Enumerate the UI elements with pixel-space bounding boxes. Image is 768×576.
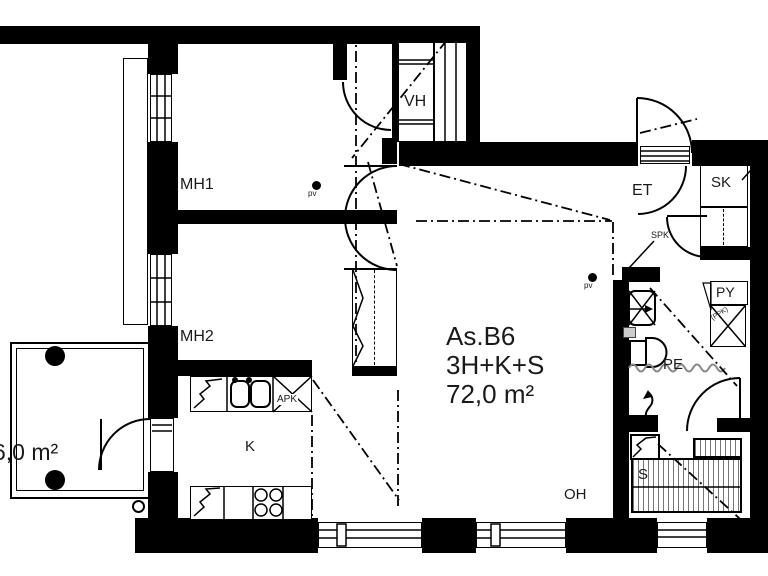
vh-door-arc [343, 82, 391, 130]
wall [352, 367, 397, 376]
sauna-bench-upper [693, 438, 742, 458]
sauna-stove [630, 434, 660, 460]
room-label-mh2: MH2 [180, 328, 214, 346]
entry-door-threshold [640, 146, 690, 164]
apartment-id: As.B6 [446, 322, 515, 350]
wall [178, 210, 397, 224]
wall [135, 518, 318, 553]
balcony-door [150, 418, 174, 472]
wall [717, 418, 750, 432]
room-label-oh: OH [564, 486, 587, 503]
window-south-2 [476, 522, 566, 548]
room-label-vh: VH [404, 93, 426, 111]
entry-door-arc [637, 98, 692, 153]
wall [148, 326, 178, 418]
wall [700, 247, 750, 260]
pv-annotation: pv [584, 281, 592, 290]
balcony-area-label: 6,0 m² [0, 439, 58, 466]
wardrobe-divider [374, 270, 375, 365]
washbasin [628, 290, 656, 326]
closet-sk-lower [700, 207, 748, 247]
room-label-kitchen: K [245, 438, 255, 455]
balcony-column [45, 470, 65, 490]
wall [382, 138, 397, 164]
floor-drain-icon [132, 500, 145, 513]
wall [148, 472, 178, 520]
apartment-layout: 3H+K+S [446, 351, 544, 379]
window-south-3 [657, 522, 707, 548]
spk-annotation: SPK [651, 230, 669, 240]
wall [613, 415, 658, 432]
toilet-icon [630, 338, 667, 367]
wall [422, 518, 476, 553]
wall [148, 44, 178, 74]
room-label-pe: PE [663, 356, 683, 373]
spk-leader-line [629, 241, 654, 268]
facade-recess-outline [123, 58, 148, 325]
kitchen-counter-lower [190, 486, 312, 520]
apartment-area: 72,0 m² [446, 380, 534, 408]
window-south-1 [318, 522, 422, 548]
pv-annotation: pv [308, 189, 316, 198]
wall [399, 142, 638, 166]
wall [566, 518, 657, 553]
room-label-py: PY [716, 284, 735, 300]
wall [692, 140, 768, 166]
window-mh2 [150, 254, 172, 326]
room-label-sk: SK [711, 174, 731, 191]
apk-annotation: APK [276, 394, 298, 405]
drain-box [623, 327, 636, 338]
room-label-mh1: MH1 [180, 176, 214, 194]
wall [148, 142, 178, 254]
window-mh1 [150, 74, 172, 142]
wall [178, 360, 312, 376]
balcony-column [45, 346, 65, 366]
wall [750, 140, 768, 553]
balcony-railing-inner [16, 348, 144, 491]
wardrobe-vh-left [398, 42, 434, 142]
wall [333, 44, 347, 80]
wall [622, 267, 660, 282]
room-label-et: ET [632, 182, 652, 200]
floor-plan: MH1 MH2 VH ET SK PY PE S K OH As.B6 3H+K… [0, 0, 768, 576]
wall [613, 280, 629, 520]
closet-divider [723, 209, 724, 245]
room-label-sauna: S [638, 466, 648, 483]
wardrobe-vh-right [434, 42, 467, 142]
